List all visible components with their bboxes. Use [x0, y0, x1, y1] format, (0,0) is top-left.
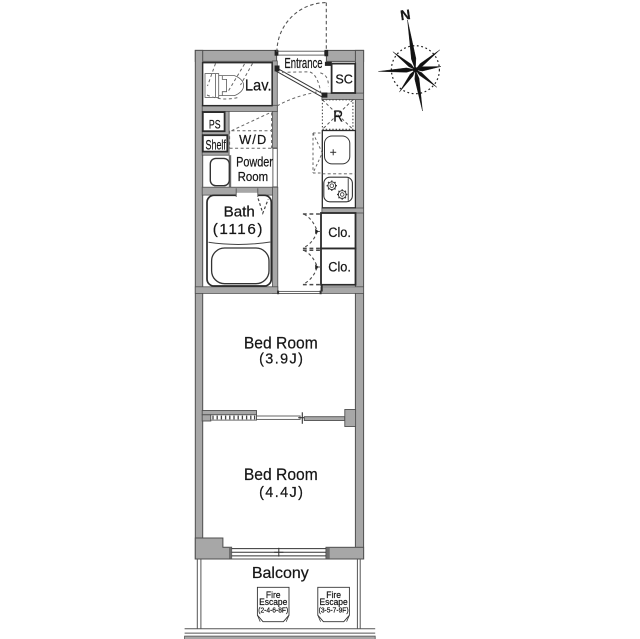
svg-text:Bath: Bath [224, 205, 255, 221]
svg-text:PS: PS [209, 118, 221, 132]
svg-text:W/D: W/D [239, 132, 267, 147]
svg-text:(3.9J): (3.9J) [259, 352, 304, 368]
svg-text:(4.4J): (4.4J) [259, 485, 304, 501]
svg-text:Shelf: Shelf [206, 139, 227, 153]
svg-text:Bed Room: Bed Room [244, 334, 318, 353]
svg-text:Bed Room: Bed Room [244, 465, 318, 484]
svg-text:Clo.: Clo. [328, 224, 351, 240]
svg-text:(1116): (1116) [213, 221, 264, 238]
svg-text:(2-4-6-8F): (2-4-6-8F) [258, 606, 288, 614]
svg-text:Balcony: Balcony [252, 565, 309, 582]
svg-text:Room: Room [238, 169, 268, 184]
svg-text:Clo.: Clo. [328, 259, 351, 275]
svg-text:N: N [399, 6, 411, 23]
svg-text:Entrance: Entrance [284, 55, 322, 72]
svg-text:Lav.: Lav. [245, 77, 272, 95]
svg-text:(3-5-7-9F): (3-5-7-9F) [319, 606, 349, 614]
svg-text:R: R [333, 108, 343, 125]
svg-text:Powder: Powder [236, 155, 273, 170]
svg-text:SC: SC [335, 72, 353, 87]
